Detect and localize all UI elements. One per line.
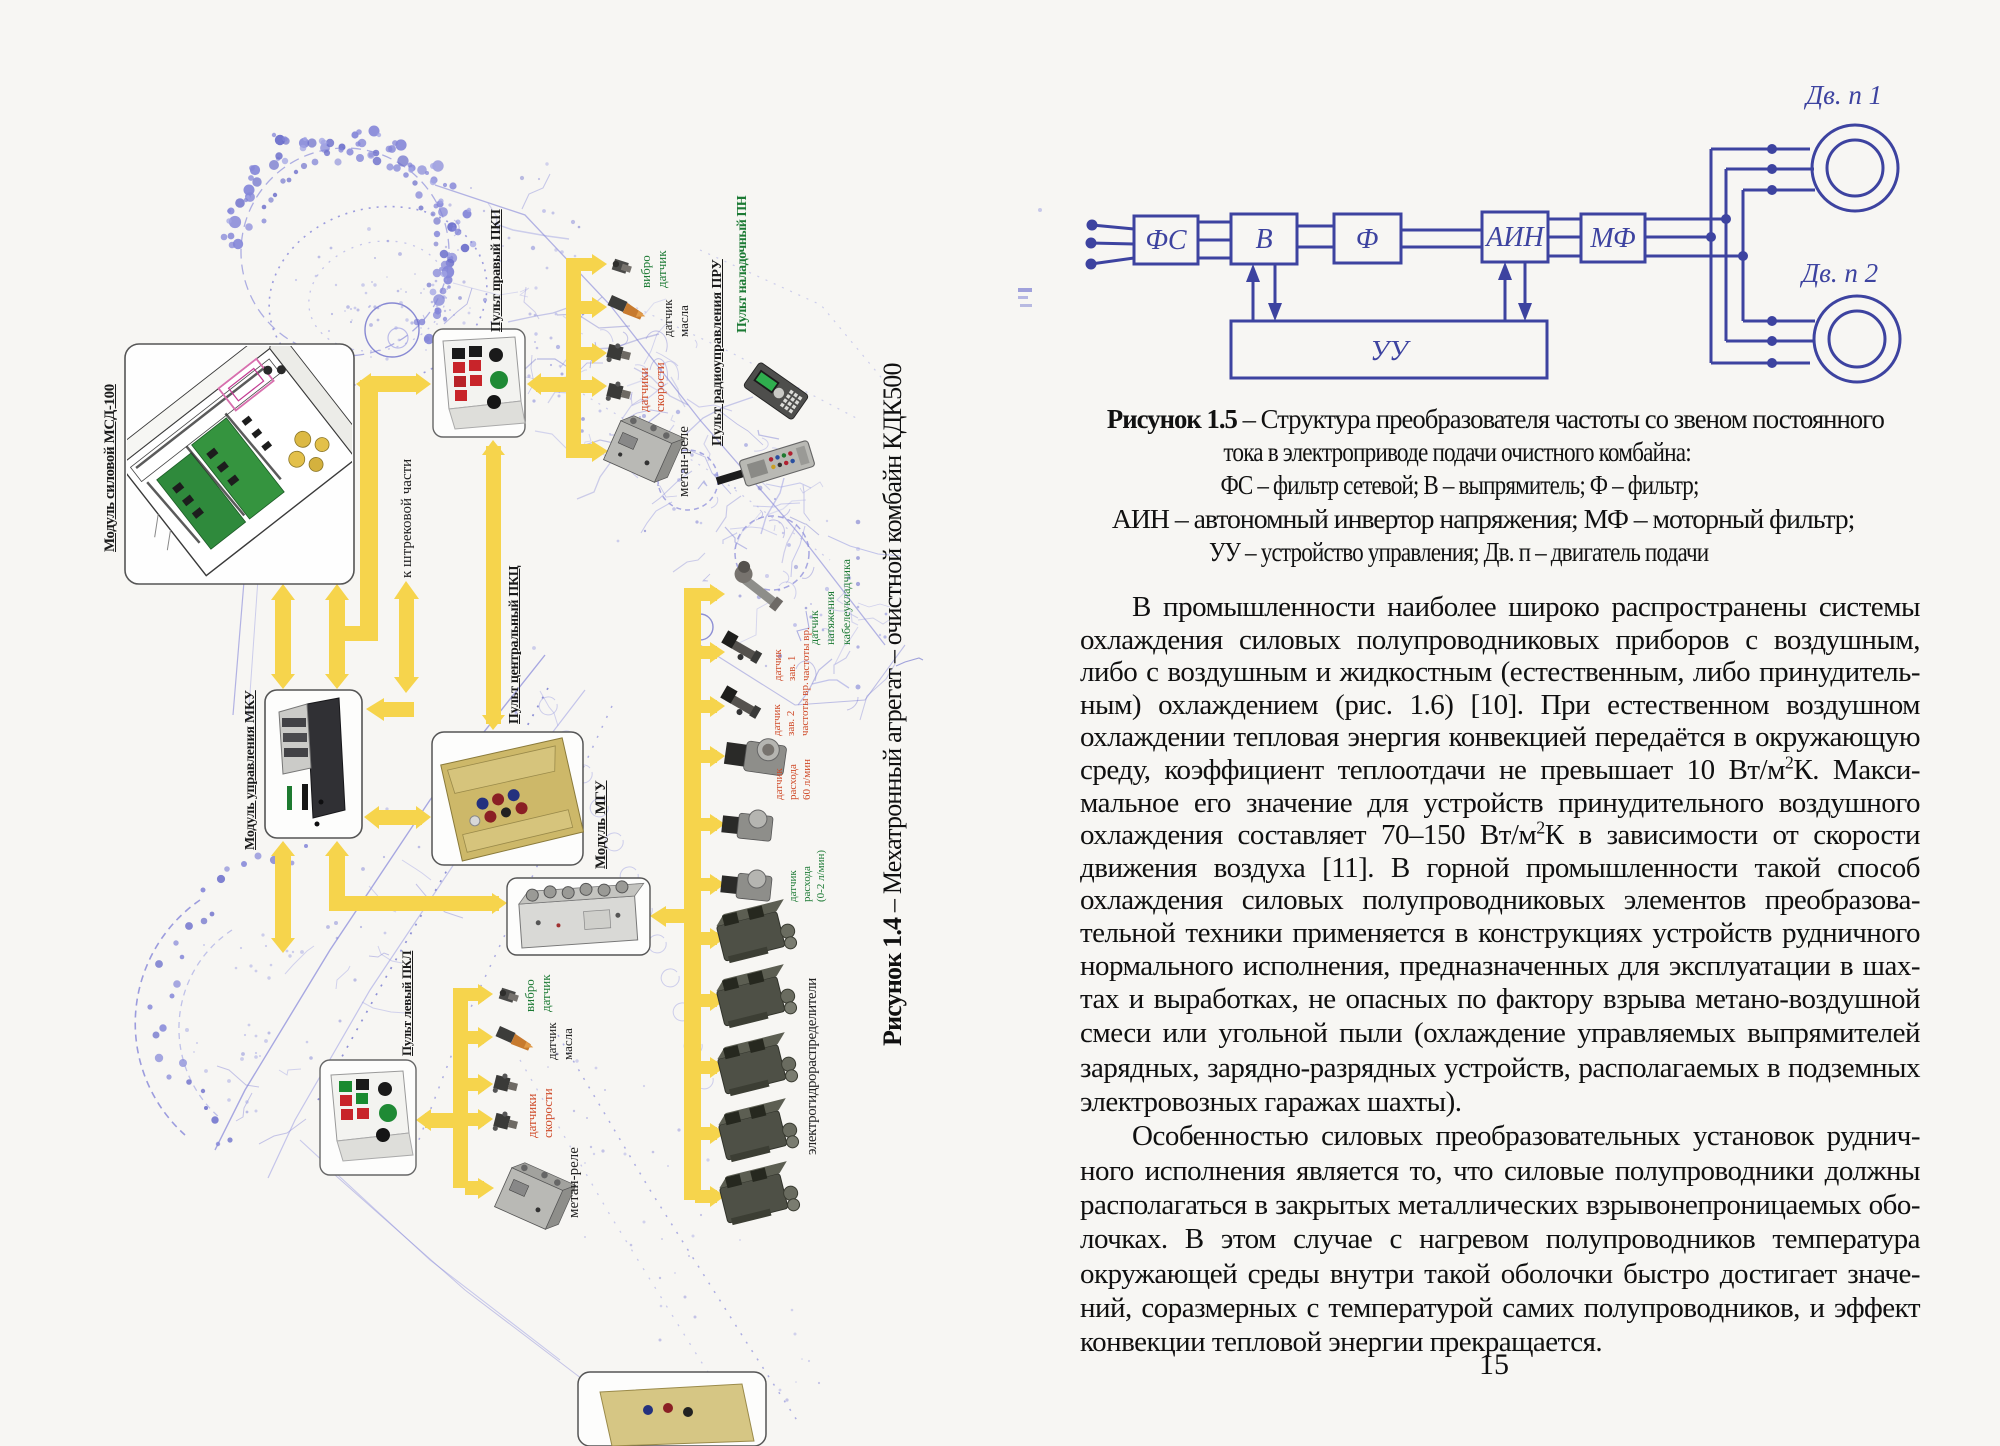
svg-text:В: В (1255, 224, 1272, 255)
svg-text:МФ: МФ (1589, 223, 1635, 254)
svg-text:Ф: Ф (1356, 224, 1379, 255)
svg-text:Дв. п 1: Дв. п 1 (1803, 80, 1882, 110)
svg-text:АИН: АИН (1484, 222, 1545, 253)
svg-text:ФС: ФС (1145, 225, 1187, 256)
svg-text:Дв. п 2: Дв. п 2 (1799, 258, 1878, 288)
svg-text:УУ: УУ (1370, 336, 1411, 367)
